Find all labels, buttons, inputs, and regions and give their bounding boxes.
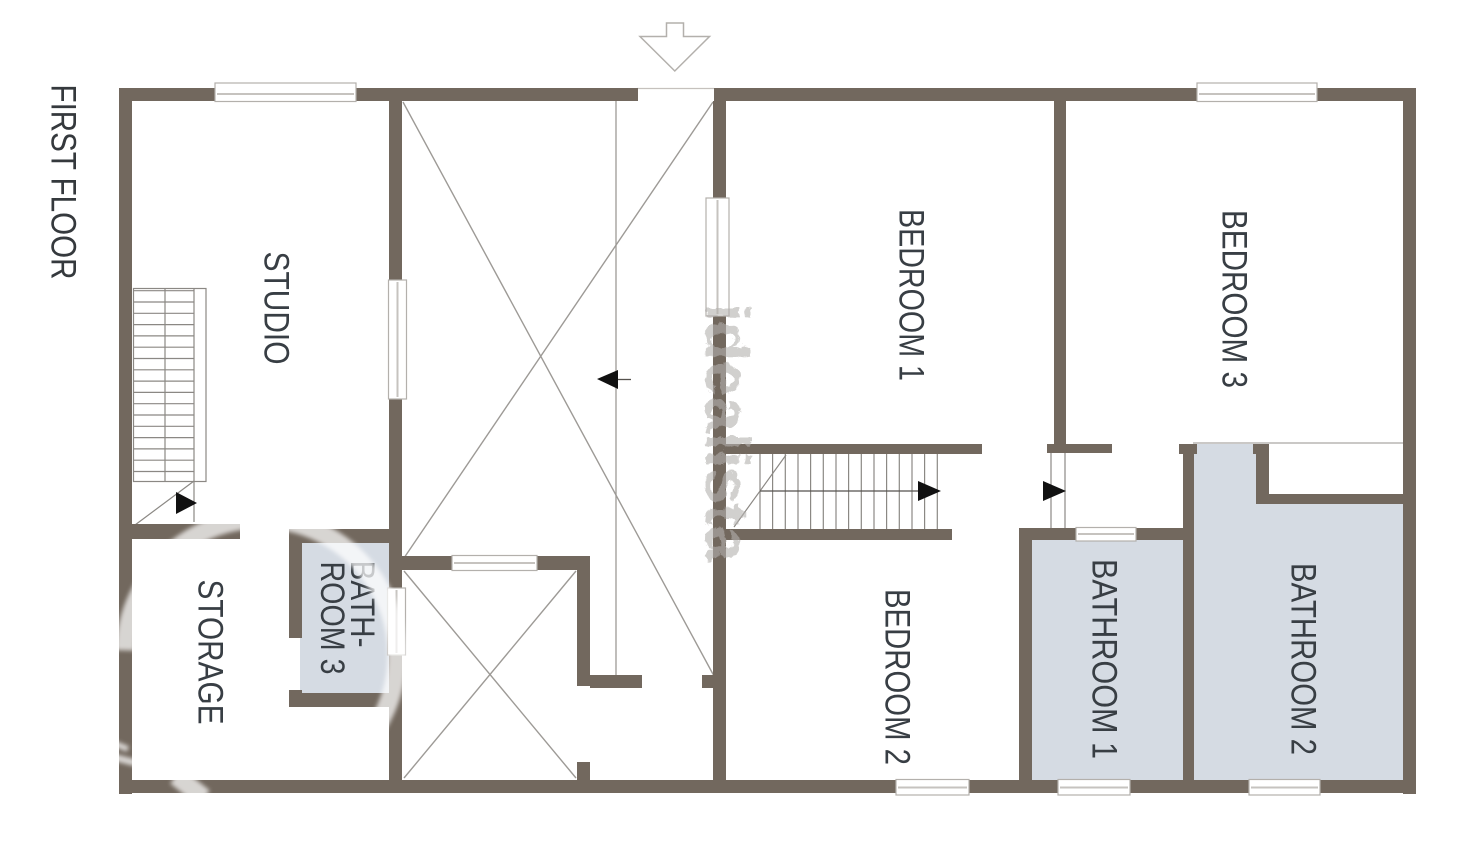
svg-text:FIRST FLOOR: FIRST FLOOR bbox=[44, 85, 83, 280]
svg-text:idealista: idealista bbox=[695, 301, 764, 560]
svg-text:STUDIO: STUDIO bbox=[257, 252, 296, 365]
svg-text:STORAGE: STORAGE bbox=[191, 580, 230, 725]
svg-text:BATHROOM 2: BATHROOM 2 bbox=[1284, 563, 1323, 755]
svg-text:BATHROOM 1: BATHROOM 1 bbox=[1085, 559, 1124, 759]
svg-text:ROOM 3: ROOM 3 bbox=[313, 562, 351, 675]
svg-text:BEDROOM 3: BEDROOM 3 bbox=[1215, 210, 1254, 388]
svg-text:BEDROOM 1: BEDROOM 1 bbox=[892, 209, 931, 381]
svg-text:BEDROOM 2: BEDROOM 2 bbox=[878, 589, 917, 765]
